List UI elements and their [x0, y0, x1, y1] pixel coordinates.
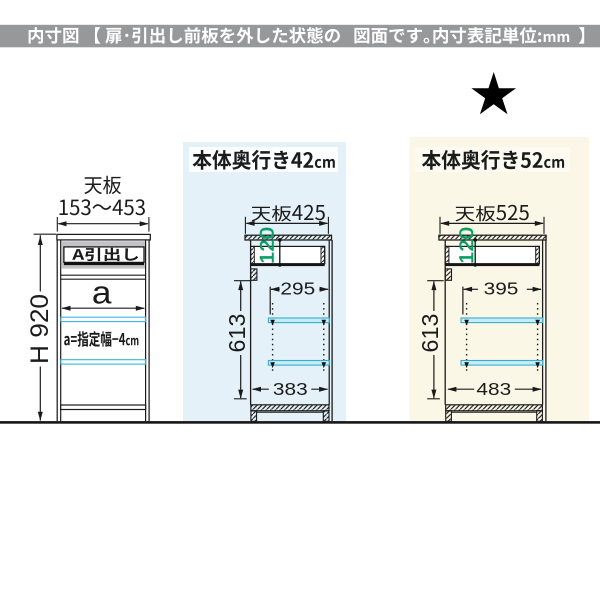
svg-text:H 920: H 920: [27, 294, 54, 364]
svg-text:383: 383: [273, 379, 308, 399]
svg-text:295: 295: [280, 279, 315, 299]
svg-text:613: 613: [224, 314, 250, 353]
svg-text:483: 483: [476, 379, 511, 399]
svg-text:120: 120: [256, 227, 278, 264]
svg-text:395: 395: [484, 279, 519, 299]
svg-text:613: 613: [417, 314, 443, 353]
svg-text:a: a: [92, 276, 112, 311]
svg-text:120: 120: [456, 227, 478, 264]
